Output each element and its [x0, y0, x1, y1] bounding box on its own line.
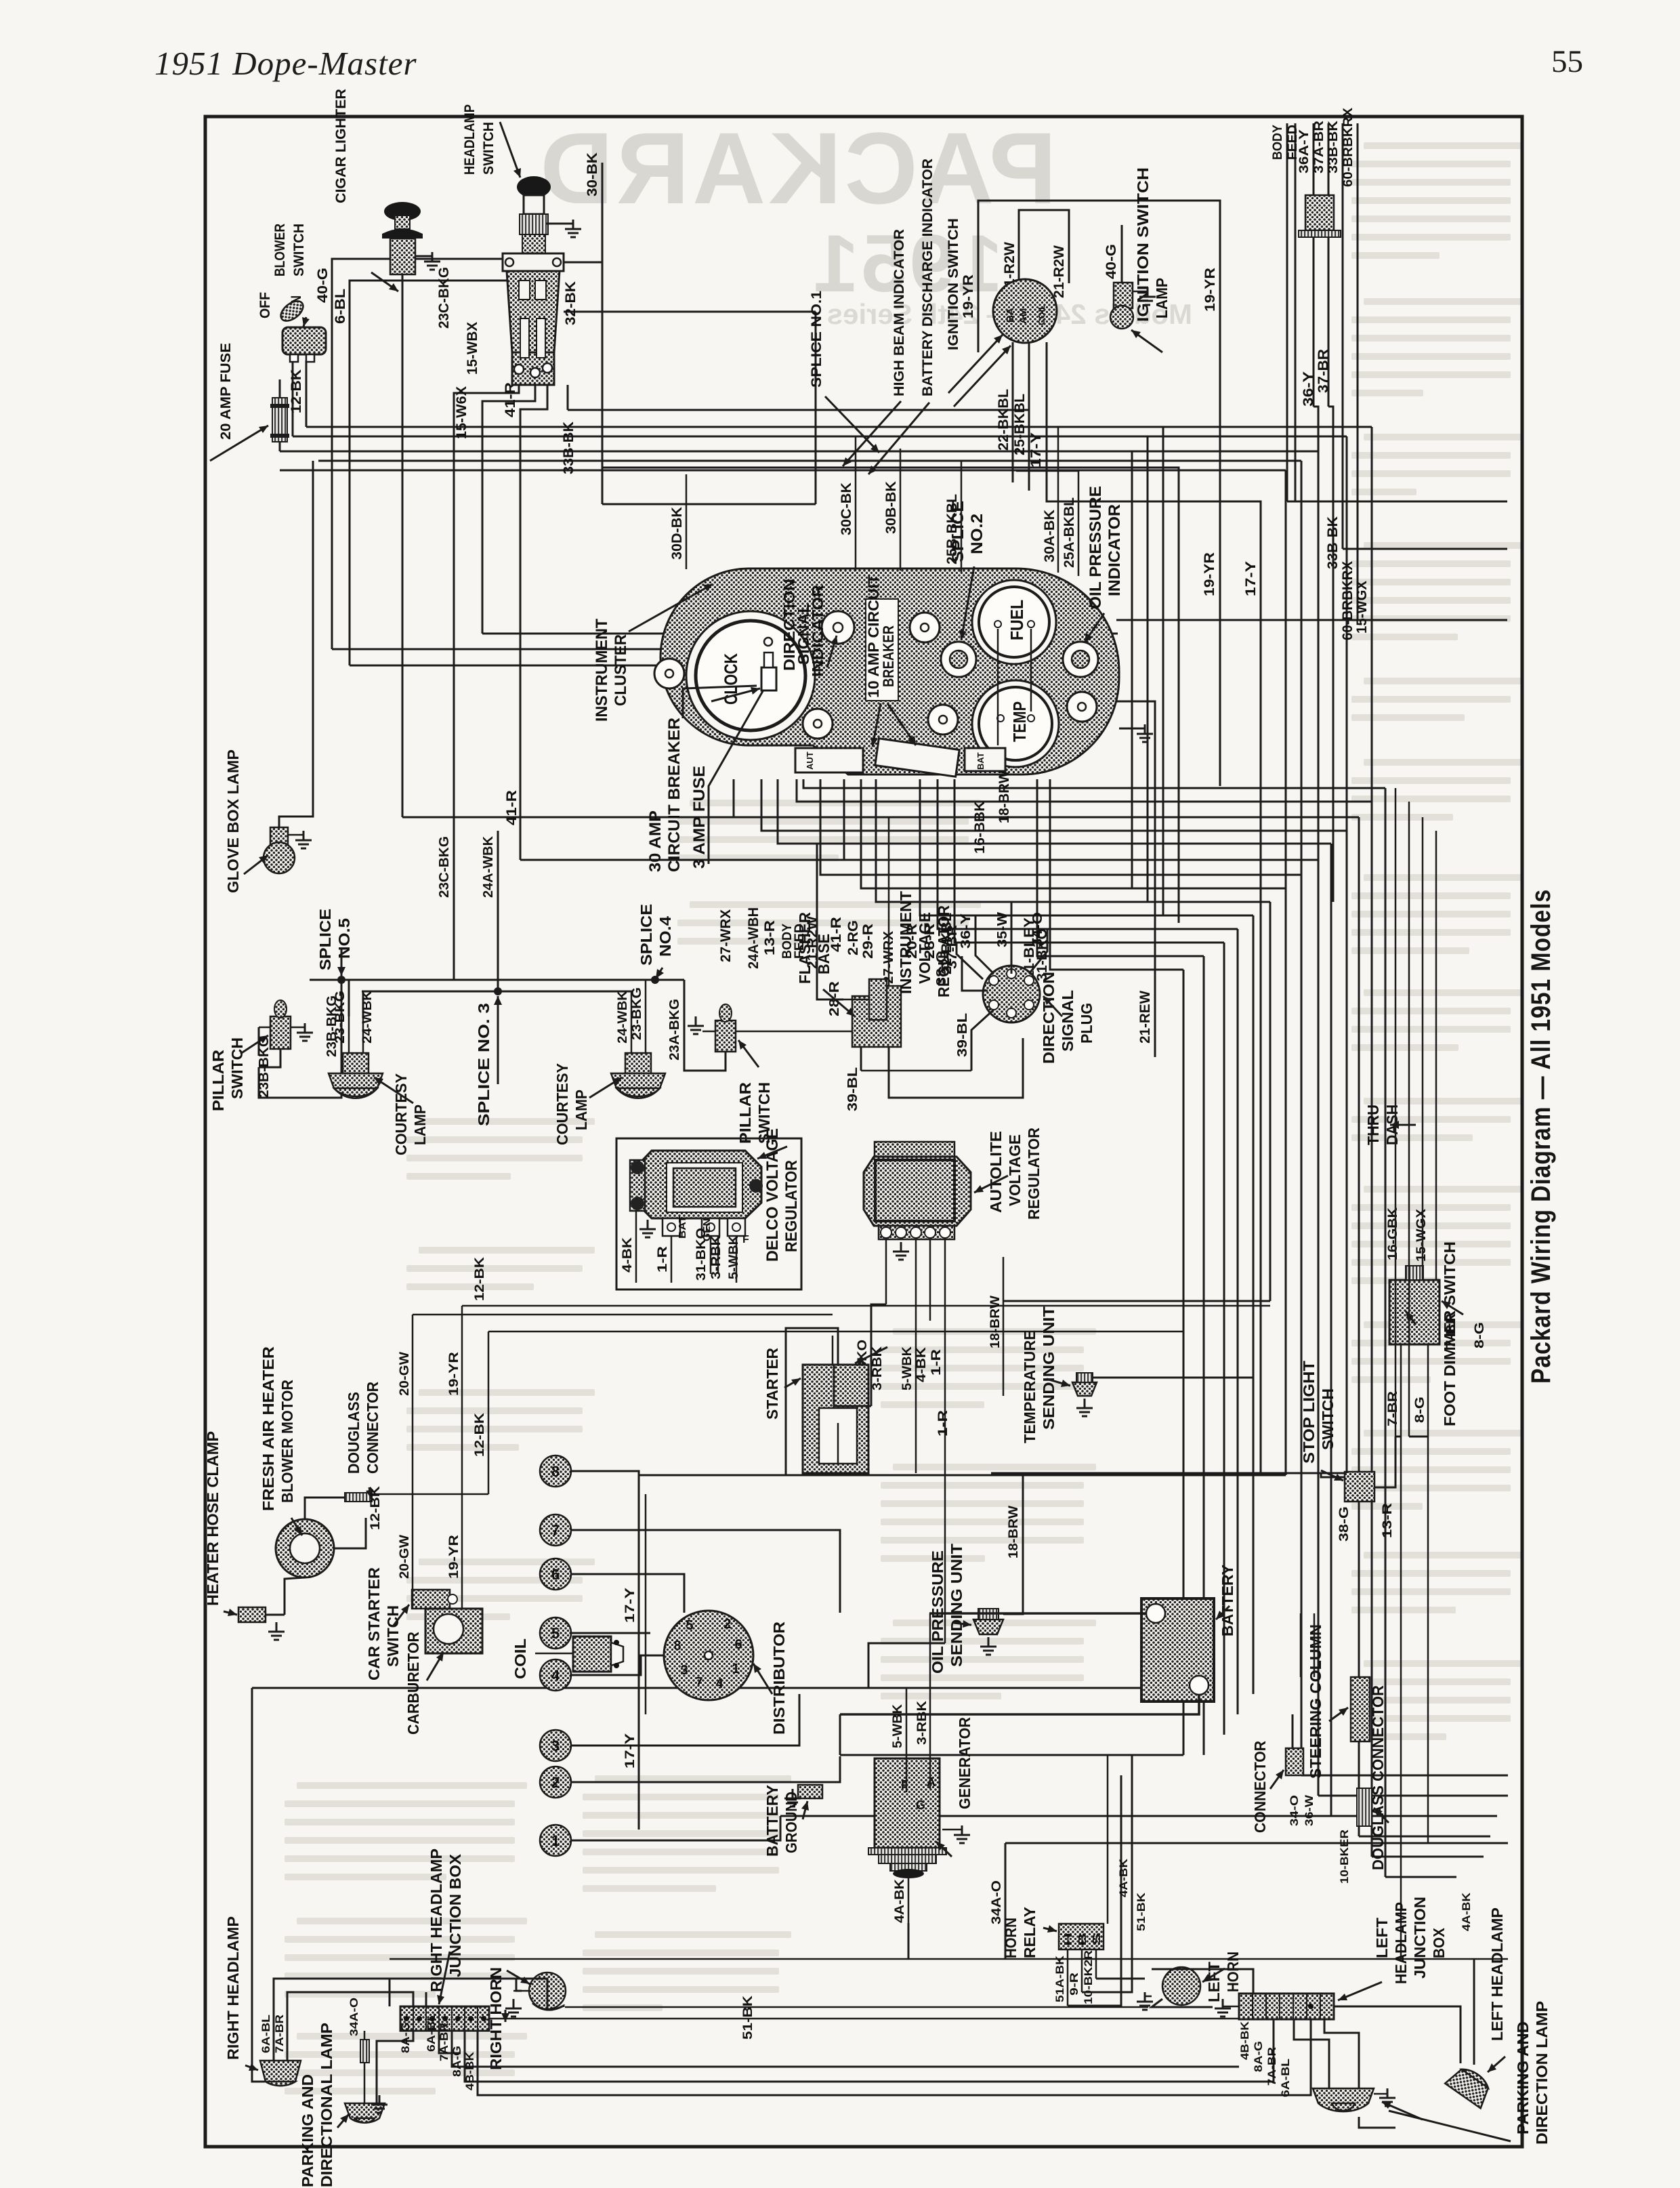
svg-text:4B-BK: 4B-BK	[463, 2051, 476, 2090]
svg-text:IGNITION SWITCH: IGNITION SWITCH	[1134, 167, 1152, 322]
svg-text:CIRCUIT BREAKER: CIRCUIT BREAKER	[665, 718, 684, 872]
svg-text:REGULATOR: REGULATOR	[782, 1160, 801, 1252]
svg-text:5-WBK: 5-WBK	[891, 1704, 905, 1748]
svg-text:37-BR: 37-BR	[1316, 349, 1331, 393]
svg-text:5-WBK: 5-WBK	[727, 1235, 741, 1279]
svg-text:5: 5	[551, 1625, 560, 1642]
svg-text:GROUND: GROUND	[782, 1792, 800, 1853]
svg-text:8: 8	[551, 1463, 560, 1480]
svg-text:BLOWER MOTOR: BLOWER MOTOR	[278, 1380, 296, 1503]
svg-text:21-REW: 21-REW	[1137, 991, 1153, 1044]
svg-text:CONNECTOR: CONNECTOR	[364, 1382, 381, 1474]
svg-text:STEERING COLUMN: STEERING COLUMN	[1307, 1624, 1324, 1779]
svg-text:INSTRUMENT: INSTRUMENT	[593, 619, 611, 722]
svg-text:FUEL: FUEL	[1007, 600, 1027, 640]
svg-text:12-BK: 12-BK	[369, 1486, 383, 1530]
svg-text:29-R: 29-R	[860, 924, 876, 959]
svg-text:24A-WBH: 24A-WBH	[746, 907, 761, 969]
svg-text:24-WBK: 24-WBK	[360, 991, 375, 1044]
svg-text:60-BRBKRX: 60-BRBKRX	[1340, 561, 1356, 640]
svg-text:25-BKBL: 25-BKBL	[1012, 394, 1028, 455]
svg-text:BA: BA	[1005, 308, 1016, 323]
svg-text:2: 2	[551, 1774, 560, 1791]
svg-text:SPLICE NO.1: SPLICE NO.1	[809, 291, 824, 388]
svg-text:SIGNAL: SIGNAL	[1059, 990, 1076, 1052]
svg-text:12-BK: 12-BK	[473, 1413, 487, 1457]
svg-text:7: 7	[551, 1522, 560, 1539]
svg-text:1-R: 1-R	[936, 1410, 950, 1437]
svg-text:9-R: 9-R	[1068, 1973, 1080, 1996]
svg-text:38-G: 38-G	[934, 951, 949, 986]
svg-text:HORN: HORN	[1002, 1918, 1020, 1958]
svg-text:2-RG: 2-RG	[845, 920, 861, 955]
svg-text:2: 2	[723, 1617, 731, 1632]
svg-text:33B-BK: 33B-BK	[1325, 516, 1341, 569]
svg-text:NO.4: NO.4	[656, 916, 674, 957]
svg-text:20-GW: 20-GW	[398, 1535, 412, 1579]
svg-text:8: 8	[673, 1638, 681, 1653]
svg-text:PARKING AND: PARKING AND	[1514, 2021, 1532, 2134]
svg-text:38-G: 38-G	[1337, 1506, 1351, 1542]
svg-text:23A-BKG: 23A-BKG	[667, 999, 682, 1060]
svg-text:33B-BK: 33B-BK	[561, 421, 576, 474]
svg-text:BODY: BODY	[1271, 125, 1285, 160]
svg-text:GLOVE BOX LAMP: GLOVE BOX LAMP	[224, 749, 242, 893]
svg-text:7: 7	[695, 1675, 702, 1690]
svg-text:SENDING UNIT: SENDING UNIT	[948, 1544, 965, 1667]
svg-text:BATTERY: BATTERY	[763, 1785, 781, 1857]
svg-text:6: 6	[551, 1566, 560, 1583]
svg-text:LAMP: LAMP	[1153, 278, 1171, 318]
svg-text:23B-BKG: 23B-BKG	[257, 1036, 272, 1098]
svg-text:17-Y: 17-Y	[623, 1733, 637, 1769]
svg-text:COURTESY: COURTESY	[392, 1073, 410, 1155]
svg-text:COIL: COIL	[1036, 304, 1047, 325]
svg-text:4-BK: 4-BK	[915, 1347, 929, 1382]
svg-text:40-G: 40-G	[315, 268, 331, 303]
svg-text:17-Y: 17-Y	[1028, 432, 1044, 468]
svg-text:4A-BK: 4A-BK	[893, 1879, 907, 1923]
svg-text:7-BR: 7-BR	[1386, 1391, 1400, 1426]
svg-text:VOLTAGE: VOLTAGE	[916, 912, 933, 984]
svg-text:10-BKER: 10-BKER	[1338, 1830, 1351, 1884]
svg-text:BREAKER: BREAKER	[880, 625, 897, 687]
svg-text:15-W6X: 15-W6X	[454, 386, 469, 439]
svg-text:RIGHT HORN: RIGHT HORN	[487, 1967, 505, 2070]
svg-text:IGNITION SWITCH: IGNITION SWITCH	[946, 218, 961, 350]
svg-text:H: H	[1063, 1933, 1074, 1946]
svg-text:30 AMP: 30 AMP	[646, 810, 665, 872]
svg-text:INDICATOR: INDICATOR	[1106, 504, 1124, 596]
svg-text:5: 5	[686, 1618, 693, 1633]
svg-text:4-BK: 4-BK	[621, 1237, 635, 1273]
svg-text:35-W: 35-W	[995, 912, 1010, 947]
svg-text:OIL PRESSURE: OIL PRESSURE	[1087, 486, 1105, 609]
svg-text:8A-G: 8A-G	[1252, 2041, 1265, 2072]
svg-text:INSTRUMENT: INSTRUMENT	[897, 891, 915, 994]
svg-text:HORN: HORN	[1224, 1952, 1242, 1992]
svg-text:LEFT: LEFT	[1205, 1962, 1223, 2002]
svg-text:15-WGX: 15-WGX	[1354, 581, 1370, 634]
svg-text:B: B	[1077, 1933, 1089, 1946]
svg-text:BAT: BAT	[677, 1216, 688, 1239]
svg-text:VOLTAGE: VOLTAGE	[1006, 1134, 1024, 1206]
svg-text:18-BRW: 18-BRW	[996, 770, 1012, 823]
svg-text:AUT: AUT	[805, 751, 815, 770]
svg-text:Packard Wiring Diagram — All 1: Packard Wiring Diagram — All 1951 Models	[1526, 889, 1556, 1384]
svg-text:SPLICE: SPLICE	[316, 909, 334, 970]
svg-text:32-BK: 32-BK	[563, 281, 579, 325]
svg-text:4: 4	[551, 1667, 560, 1684]
svg-text:30B-BK: 30B-BK	[883, 481, 899, 534]
svg-text:CLUSTER: CLUSTER	[612, 634, 630, 706]
svg-text:16-GBK: 16-GBK	[1386, 1207, 1400, 1260]
svg-text:20-GW: 20-GW	[398, 1352, 412, 1396]
svg-text:4: 4	[715, 1676, 723, 1691]
svg-text:23C-BKG: 23C-BKG	[436, 267, 452, 329]
svg-text:13-R: 13-R	[1381, 1503, 1395, 1538]
svg-text:18-BRW: 18-BRW	[988, 1296, 1003, 1348]
svg-text:7A-BR: 7A-BR	[1265, 2047, 1278, 2086]
svg-text:17-Y: 17-Y	[623, 1588, 637, 1623]
svg-text:GENERATOR: GENERATOR	[956, 1717, 973, 1809]
svg-text:1-R: 1-R	[656, 1246, 670, 1273]
svg-text:6-BL: 6-BL	[333, 289, 348, 324]
svg-text:33B-BK: 33B-BK	[1326, 121, 1341, 173]
svg-text:RELAY: RELAY	[1021, 1907, 1038, 1958]
svg-text:6A-BL: 6A-BL	[1279, 2059, 1292, 2097]
svg-text:40-G: 40-G	[1104, 244, 1119, 279]
svg-text:S: S	[1091, 1932, 1103, 1946]
svg-text:SWITCH: SWITCH	[384, 1605, 402, 1667]
svg-text:COURTESY: COURTESY	[553, 1063, 571, 1145]
svg-text:DIRECTION: DIRECTION	[1040, 972, 1057, 1064]
svg-text:TEMP: TEMP	[1009, 701, 1030, 742]
svg-text:DIRECTIONAL LAMP: DIRECTIONAL LAMP	[318, 2023, 335, 2187]
svg-text:19-YR: 19-YR	[1202, 552, 1217, 596]
svg-text:COIL: COIL	[511, 1638, 529, 1679]
svg-text:1: 1	[551, 1832, 560, 1849]
svg-text:BAT: BAT	[975, 752, 986, 770]
svg-text:24-WBK: 24-WBK	[616, 991, 630, 1044]
svg-text:1-R: 1-R	[929, 1349, 944, 1376]
svg-text:4B-BK: 4B-BK	[1238, 2021, 1251, 2060]
svg-text:DOUGLASS CONNECTOR: DOUGLASS CONNECTOR	[1369, 1685, 1387, 1870]
svg-text:19-YR: 19-YR	[447, 1352, 461, 1396]
svg-text:23-BKG: 23-BKG	[630, 987, 644, 1040]
svg-text:34A-O: 34A-O	[348, 1998, 360, 2036]
svg-text:SWITCH: SWITCH	[228, 1037, 246, 1099]
svg-text:8A-G: 8A-G	[399, 2022, 412, 2053]
svg-text:A: A	[927, 1775, 937, 1789]
svg-text:CIGAR LIGHTER: CIGAR LIGHTER	[333, 89, 349, 203]
svg-text:4A-BK: 4A-BK	[1460, 1892, 1473, 1931]
svg-text:BATTERY: BATTERY	[1219, 1565, 1236, 1636]
svg-text:HIGH BEAM INDICATOR: HIGH BEAM INDICATOR	[891, 229, 907, 396]
svg-text:60-BRBKRX: 60-BRBKRX	[1341, 108, 1356, 187]
svg-text:36-Y: 36-Y	[959, 913, 973, 949]
svg-text:30D-BK: 30D-BK	[669, 507, 685, 560]
svg-text:12-BK: 12-BK	[473, 1257, 487, 1301]
svg-text:AM: AM	[1017, 308, 1029, 324]
svg-text:LEFT HEADLAMP: LEFT HEADLAMP	[1488, 1907, 1506, 2041]
svg-text:3: 3	[551, 1737, 560, 1754]
svg-text:51A-BK: 51A-BK	[1053, 1955, 1066, 2002]
svg-text:3-RBK: 3-RBK	[709, 1235, 723, 1279]
svg-text:1951 Dope-Master: 1951 Dope-Master	[154, 45, 417, 82]
svg-text:8-G: 8-G	[1473, 1322, 1487, 1348]
svg-text:6: 6	[734, 1637, 742, 1652]
svg-text:30C-BK: 30C-BK	[839, 482, 854, 535]
svg-text:STARTER: STARTER	[763, 1348, 781, 1420]
svg-text:13-R: 13-R	[762, 920, 778, 955]
svg-text:CONNECTOR: CONNECTOR	[1251, 1741, 1269, 1833]
svg-text:TEMPERATURE: TEMPERATURE	[1021, 1330, 1038, 1443]
svg-text:SPLICE NO. 3: SPLICE NO. 3	[475, 1003, 492, 1126]
svg-text:19-YR: 19-YR	[1202, 268, 1218, 312]
svg-text:DIRECTION LAMP: DIRECTION LAMP	[1533, 2001, 1551, 2145]
svg-text:F: F	[742, 1234, 750, 1245]
svg-text:JUNCTION: JUNCTION	[1411, 1897, 1429, 1979]
svg-text:PLUG: PLUG	[1078, 1003, 1095, 1044]
svg-text:1: 1	[732, 1661, 739, 1676]
svg-text:SENDING UNIT: SENDING UNIT	[1040, 1306, 1057, 1430]
svg-text:21-R2W: 21-R2W	[1051, 245, 1067, 298]
svg-text:CAR STARTER: CAR STARTER	[365, 1567, 383, 1680]
svg-text:4A-BK: 4A-BK	[1117, 1858, 1130, 1897]
svg-text:HEADLAMP: HEADLAMP	[462, 104, 478, 175]
svg-text:15-WGX: 15-WGX	[1414, 1209, 1429, 1262]
svg-text:36A-Y: 36A-Y	[1297, 129, 1311, 173]
svg-text:BLOWER: BLOWER	[272, 224, 288, 276]
svg-text:41-R: 41-R	[503, 382, 518, 417]
svg-text:16-BBK: 16-BBK	[972, 801, 988, 854]
svg-text:BOX: BOX	[1430, 1927, 1448, 1958]
svg-text:6A-BL: 6A-BL	[425, 2013, 438, 2052]
svg-text:BATTERY DISCHARGE INDICATOR: BATTERY DISCHARGE INDICATOR	[920, 159, 936, 396]
svg-text:G: G	[916, 1798, 927, 1812]
svg-text:DISTRIBUTOR: DISTRIBUTOR	[770, 1622, 788, 1735]
svg-text:STOP LIGHT: STOP LIGHT	[1300, 1361, 1318, 1464]
svg-text:PILLAR: PILLAR	[209, 1050, 227, 1111]
svg-text:6A-BL: 6A-BL	[259, 2015, 272, 2053]
svg-text:3: 3	[680, 1663, 688, 1678]
svg-text:51-BK: 51-BK	[1135, 1892, 1148, 1931]
svg-text:20 AMP FUSE: 20 AMP FUSE	[218, 343, 234, 440]
svg-text:55: 55	[1551, 44, 1583, 79]
svg-text:19-YR: 19-YR	[447, 1535, 461, 1579]
svg-text:LAMP: LAMP	[411, 1105, 429, 1145]
svg-text:27-WRX: 27-WRX	[718, 909, 734, 962]
svg-text:39-BL: 39-BL	[845, 1067, 860, 1111]
svg-text:FRESH AIR HEATER: FRESH AIR HEATER	[259, 1346, 277, 1511]
svg-text:OIL PRESSURE: OIL PRESSURE	[929, 1550, 946, 1674]
svg-text:24A-WBK: 24A-WBK	[481, 835, 496, 898]
svg-text:HEATER HOSE CLAMP: HEATER HOSE CLAMP	[204, 1431, 222, 1606]
svg-text:10-BK2R: 10-BK2R	[1082, 1950, 1095, 2004]
svg-text:12-BK: 12-BK	[289, 369, 304, 413]
svg-text:30-BK: 30-BK	[585, 152, 600, 197]
svg-text:DOUGLASS: DOUGLASS	[345, 1392, 362, 1474]
svg-text:34-O: 34-O	[1288, 1795, 1301, 1826]
svg-text:25B-BKBL: 25B-BKBL	[944, 494, 960, 564]
svg-text:SWITCH: SWITCH	[291, 224, 307, 276]
svg-text:34-O: 34-O	[1030, 912, 1045, 947]
svg-text:18-BRW: 18-BRW	[1007, 1506, 1021, 1559]
svg-text:23C-BKG: 23C-BKG	[437, 836, 452, 898]
svg-text:31-BKO: 31-BKO	[694, 1228, 709, 1281]
svg-text:NO.5: NO.5	[335, 918, 353, 959]
svg-text:7A-BR: 7A-BR	[273, 2015, 286, 2053]
svg-text:23-BKG: 23-BKG	[333, 991, 348, 1044]
svg-text:41-R: 41-R	[504, 790, 520, 825]
svg-text:36-Y: 36-Y	[1301, 371, 1316, 407]
svg-text:8A-G: 8A-G	[450, 2046, 463, 2077]
svg-text:DELCO VOLTAGE: DELCO VOLTAGE	[763, 1128, 782, 1262]
svg-text:PARKING AND: PARKING AND	[299, 2074, 316, 2187]
svg-text:7-BR: 7-BR	[1444, 1313, 1458, 1348]
svg-text:22-BKBL: 22-BKBL	[996, 389, 1011, 451]
svg-text:PILLAR: PILLAR	[736, 1082, 754, 1144]
svg-text:15-WBX: 15-WBX	[465, 322, 480, 375]
svg-text:SWITCH: SWITCH	[1319, 1388, 1337, 1450]
svg-text:5-WBK: 5-WBK	[900, 1346, 915, 1390]
svg-text:39-BL: 39-BL	[955, 1013, 970, 1057]
svg-text:LAMP: LAMP	[572, 1090, 590, 1130]
svg-text:OFF: OFF	[257, 292, 273, 318]
svg-text:F: F	[901, 1778, 910, 1792]
svg-text:30A-BK: 30A-BK	[1042, 510, 1057, 562]
svg-text:25A-BKBL: 25A-BKBL	[1062, 497, 1077, 568]
svg-text:CARBURETOR: CARBURETOR	[404, 1632, 422, 1735]
svg-text:SPLICE: SPLICE	[637, 904, 655, 966]
svg-text:36-W: 36-W	[1303, 1794, 1316, 1826]
svg-text:RIGHT HEADLAMP: RIGHT HEADLAMP	[224, 1916, 242, 2060]
svg-text:LEFT: LEFT	[1373, 1918, 1391, 1958]
svg-text:17-Y: 17-Y	[1243, 561, 1259, 596]
svg-text:51-BK: 51-BK	[741, 1996, 755, 2040]
svg-text:THRU: THRU	[1364, 1105, 1382, 1145]
svg-text:3-RBK: 3-RBK	[915, 1701, 929, 1745]
svg-text:REGULATOR: REGULATOR	[1025, 1128, 1043, 1220]
svg-text:RIGHT HEADLAMP: RIGHT HEADLAMP	[427, 1849, 445, 1992]
svg-text:NO.2: NO.2	[968, 514, 986, 554]
svg-text:8-G: 8-G	[1413, 1397, 1427, 1423]
svg-text:37A-BR: 37A-BR	[1312, 121, 1326, 173]
svg-text:19-YR: 19-YR	[961, 274, 976, 318]
svg-text:SWITCH: SWITCH	[481, 122, 497, 175]
svg-text:3 AMP FUSE: 3 AMP FUSE	[690, 766, 709, 869]
svg-text:FLASHER: FLASHER	[796, 912, 814, 984]
svg-text:HEADLAMP: HEADLAMP	[1392, 1902, 1410, 1984]
svg-text:INDICATOR: INDICATOR	[809, 585, 826, 677]
svg-text:7A-BR: 7A-BR	[438, 2023, 450, 2061]
svg-text:AUTOLITE: AUTOLITE	[987, 1131, 1005, 1213]
